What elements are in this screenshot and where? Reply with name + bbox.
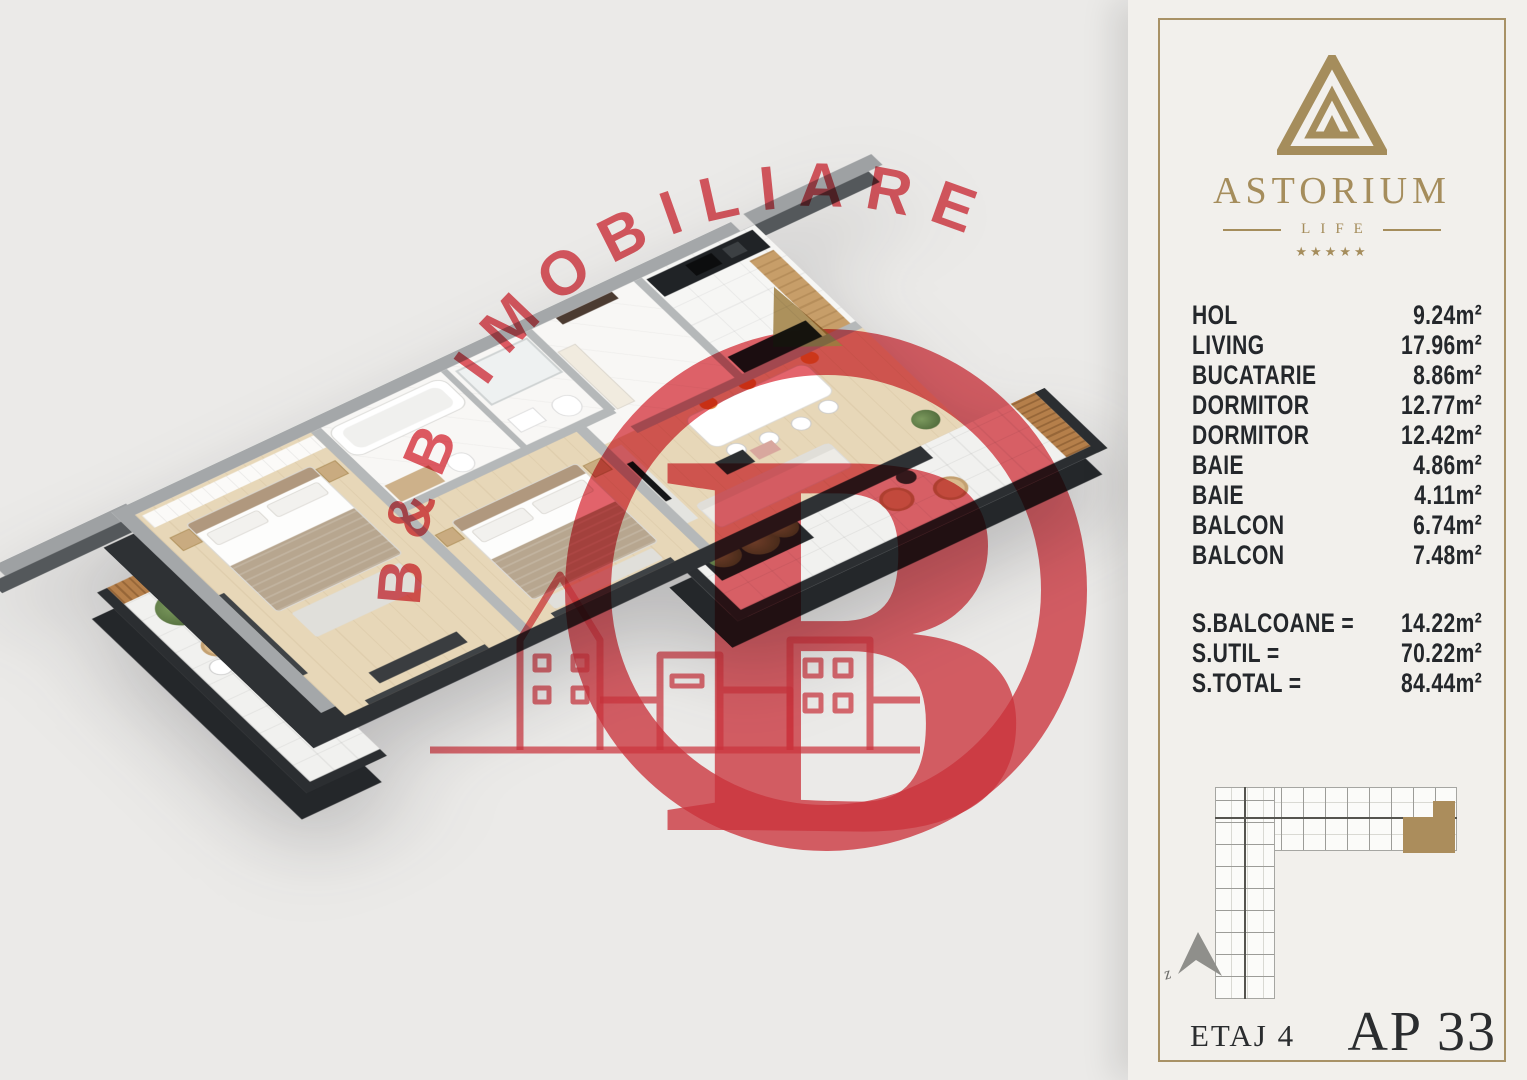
room-area: 4.86m² bbox=[1413, 450, 1482, 481]
info-panel: ASTORIUM LIFE ★★★★★ HOL9.24m² LIVING17.9… bbox=[1128, 0, 1527, 1080]
room-row: BUCATARIE8.86m² bbox=[1192, 360, 1482, 390]
neighbor-wall-stub-right bbox=[743, 154, 882, 225]
wicker-chair bbox=[872, 483, 921, 516]
room-area: 17.96m² bbox=[1401, 330, 1482, 361]
north-arrow-glyph bbox=[1164, 930, 1228, 986]
floor-plan-sheet: B B&B IMOBILIARE bbox=[0, 0, 1527, 1080]
room-area: 12.77m² bbox=[1401, 390, 1482, 421]
total-label: S.TOTAL = bbox=[1192, 668, 1301, 699]
room-label: BAIE bbox=[1192, 450, 1244, 481]
dining-chair bbox=[788, 415, 813, 432]
room-area: 6.74m² bbox=[1413, 510, 1482, 541]
room-area: 4.11m² bbox=[1414, 480, 1482, 511]
total-label: S.BALCOANE = bbox=[1192, 608, 1354, 639]
highlighted-unit-balcony bbox=[1433, 801, 1455, 819]
total-value: 70.22m² bbox=[1401, 638, 1482, 669]
brand-triangle-icon bbox=[1277, 55, 1387, 155]
room-row: HOL9.24m² bbox=[1192, 300, 1482, 330]
room-area-list: HOL9.24m² LIVING17.96m² BUCATARIE8.86m² … bbox=[1192, 300, 1482, 570]
sink bbox=[509, 408, 546, 431]
room-area: 9.24m² bbox=[1413, 300, 1482, 331]
room-label: DORMITOR bbox=[1192, 420, 1309, 451]
balcony-table bbox=[892, 467, 921, 486]
brand-subtitle-row: LIFE bbox=[1158, 221, 1506, 238]
rule-right bbox=[1383, 229, 1441, 231]
room-row: DORMITOR12.42m² bbox=[1192, 420, 1482, 450]
north-arrow-icon: z bbox=[1164, 930, 1228, 986]
room-row: DORMITOR12.77m² bbox=[1192, 390, 1482, 420]
room-row: BAIE4.11m² bbox=[1192, 480, 1482, 510]
floor-label: ETAJ 4 bbox=[1190, 1018, 1295, 1054]
brand-name: ASTORIUM bbox=[1158, 169, 1506, 213]
total-row: S.UTIL =70.22m² bbox=[1192, 638, 1482, 668]
site-plan-thumbnail bbox=[1215, 785, 1467, 1000]
floor-plan-scene: B B&B IMOBILIARE bbox=[0, 0, 1128, 1080]
room-row: BAIE4.86m² bbox=[1192, 450, 1482, 480]
room-row: BALCON7.48m² bbox=[1192, 540, 1482, 570]
coffee-table bbox=[715, 450, 756, 475]
room-label: LIVING bbox=[1192, 330, 1265, 361]
room-label: BUCATARIE bbox=[1192, 360, 1316, 391]
highlighted-unit bbox=[1403, 817, 1455, 853]
brand-subtitle: LIFE bbox=[1291, 221, 1373, 238]
room-label: BALCON bbox=[1192, 540, 1284, 571]
total-value: 84.44m² bbox=[1401, 668, 1482, 699]
plant bbox=[905, 406, 946, 433]
rule-left bbox=[1223, 229, 1281, 231]
dining-chair bbox=[816, 398, 841, 415]
total-row: S.TOTAL =84.44m² bbox=[1192, 668, 1482, 698]
room-area: 12.42m² bbox=[1401, 420, 1482, 451]
total-value: 14.22m² bbox=[1401, 608, 1482, 639]
brand-stars-icon: ★★★★★ bbox=[1158, 244, 1506, 260]
apartment-number: AP 33 bbox=[1347, 1000, 1497, 1064]
balcony-wood-wall bbox=[1011, 393, 1091, 458]
wicker-chair bbox=[194, 630, 240, 661]
totals-list: S.BALCOANE =14.22m² S.UTIL =70.22m² S.TO… bbox=[1192, 608, 1482, 698]
wicker-chair bbox=[926, 472, 975, 505]
room-label: DORMITOR bbox=[1192, 390, 1309, 421]
coffee-table-pink bbox=[749, 440, 781, 460]
room-label: HOL bbox=[1192, 300, 1238, 331]
balcony-table bbox=[206, 657, 237, 677]
room-row: BALCON6.74m² bbox=[1192, 510, 1482, 540]
toilet bbox=[548, 393, 587, 419]
brand-block: ASTORIUM LIFE ★★★★★ bbox=[1158, 55, 1506, 260]
room-row: LIVING17.96m² bbox=[1192, 330, 1482, 360]
room-area: 7.48m² bbox=[1413, 540, 1482, 571]
room-label: BAIE bbox=[1192, 480, 1244, 511]
room-label: BALCON bbox=[1192, 510, 1284, 541]
room-area: 8.86m² bbox=[1413, 360, 1482, 391]
total-row: S.BALCOANE =14.22m² bbox=[1192, 608, 1482, 638]
total-label: S.UTIL = bbox=[1192, 638, 1280, 669]
entrance-door bbox=[556, 292, 619, 325]
building-corridor bbox=[1244, 787, 1246, 999]
